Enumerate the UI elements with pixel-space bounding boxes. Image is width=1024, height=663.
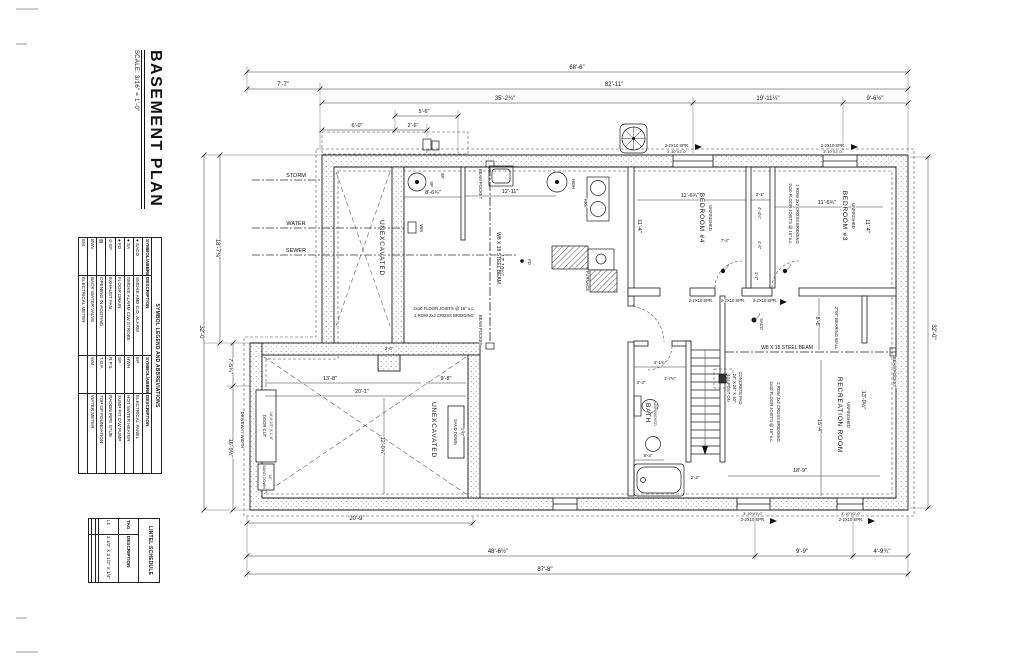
room-sublabel: UNFINISHED [708, 205, 713, 231]
dim-label: 4'-4" [757, 241, 762, 250]
lintel-note: 2-2X10 SPR. [665, 143, 689, 148]
sheet-corner-marks [16, 9, 38, 652]
dim-label: 68'-6" [569, 65, 584, 71]
furnace [552, 246, 588, 269]
dim-label: 12'-11" [502, 189, 519, 195]
furnace-plenum [590, 270, 617, 292]
dim-label: 6'-0" [352, 123, 363, 129]
lintel-note: 2-2X10 SPR. [839, 517, 863, 522]
dim-label: 19'-11½" [756, 95, 779, 102]
floor-drain [520, 259, 524, 263]
dim-label: 18'-7¾" [214, 239, 220, 259]
legend-symbol: ● SACO [133, 238, 142, 276]
symbol-legend: SYMBOL LEGEND AND ABBREVIATIONS SYMBOL/A… [78, 237, 162, 473]
legend-symbol: T.O.F. [97, 356, 106, 394]
sand-down-depth: 16" [268, 474, 272, 480]
legend-desc: ELECTRICAL PANEL [133, 394, 142, 474]
room-label-recreation: RECREATION ROOM [836, 377, 843, 453]
legend-symbol: ▨ [97, 238, 106, 276]
exhaust-fan-label: EF [440, 173, 445, 179]
legend-desc: OPENING IN FOOTING [97, 276, 106, 356]
sand-down-note: SAND DOWN [453, 419, 458, 445]
steel-beam-note: W8 X 18 STEEL BEAM [761, 345, 813, 351]
beam-pocket-note: BEAM POCKET [892, 357, 897, 388]
post-note: 24" X 24" X 10" [732, 374, 737, 403]
walls [250, 155, 908, 510]
joist-note: 2x10 FLOOR JOISTS @ 16" o.c. [788, 183, 793, 244]
page-title: BASEMENT PLAN [141, 50, 164, 209]
dim-label: 32'-0" [930, 324, 936, 339]
dim-label: 13'-0½" [860, 391, 867, 410]
dim-label: 82'-11" [605, 82, 623, 88]
windows [553, 155, 863, 510]
lintel-table: LINTEL SCHEDULE TAG DESCRIPTION L13 1/2"… [88, 518, 160, 583]
storm-label: STORM [286, 173, 306, 179]
joist-note: 2x10 FLOOR JOISTS @ 16" o.c. [413, 306, 474, 311]
legend-symbol: R.P.S. [106, 356, 115, 394]
post-note: CONCRETE PAD [738, 372, 743, 405]
legend-symbol: ● FD [115, 238, 124, 276]
window-size-note: 3'-10"X2'-0" [667, 150, 687, 154]
lintel-desc [95, 535, 98, 583]
dim-label: 3'-3" [637, 380, 646, 385]
dim-label: 16'-9½" [227, 439, 234, 458]
dim-label: 1'-2" [754, 272, 759, 281]
dim-label: 9'-9" [796, 549, 808, 555]
dim-label: 18'-9" [793, 468, 807, 474]
window-well-fan [620, 124, 647, 153]
steel-beam-note: W8 X 18 STEEL BEAM [495, 232, 501, 284]
dim-label: 12'-0¾" [379, 437, 385, 456]
legend-symbol: EP [133, 356, 142, 394]
lintel-desc [89, 535, 92, 583]
window-size-note: 3'-10"X2'-0" [743, 512, 763, 516]
lintel-header: TAG [118, 519, 138, 535]
room-label-bath: BATH [644, 403, 651, 423]
dim-label: 9'-6½" [867, 95, 884, 102]
legend-desc: TOP OF FOUNDATION [97, 394, 106, 474]
wm-label: WM [419, 224, 424, 232]
legend-header: SYMBOL/ABBREV. [143, 356, 152, 394]
sump-pit-label: SP [429, 181, 434, 187]
legend-title: SYMBOL LEGEND AND ABBREVIATIONS [152, 238, 162, 474]
dim-label: 8'-6¾" [425, 190, 441, 196]
room-sublabel: UNFINISHED [846, 402, 851, 428]
construction-notes: W8 X 18 STEEL BEAM W8 X 18 STEEL BEAM BE… [262, 143, 897, 522]
beam-pocket-note: BEAM POCKET [478, 169, 483, 200]
legend-symbol: SP [115, 356, 124, 394]
hwh-label: HWH [571, 179, 576, 189]
legend-symbol: ● SA [124, 238, 133, 276]
dim-label: 2'-6" [408, 123, 419, 129]
stud-walls [461, 167, 896, 496]
legend-desc: SMOKE ALARM C/W STROBE [124, 276, 133, 356]
legend-desc: SUMP PIT C/W PUMP [115, 394, 124, 474]
lintel-note: 2-2X10 SPR. [753, 298, 777, 303]
dim-label: 9'-8" [441, 376, 452, 382]
meter [423, 139, 431, 150]
water-meter [408, 222, 416, 233]
dim-label: 7'-4" [721, 238, 730, 243]
legend-header: SYMBOL/ABBREV. [143, 238, 152, 276]
dim-label: 4'-1¾" [654, 360, 667, 365]
lintel-desc: 3 1/2" X 3 1/2" X 1/4" [98, 535, 118, 583]
bath-fixtures [634, 396, 684, 496]
utility-labels: STORM WATER SEWER [286, 173, 306, 254]
dim-label: 11'-6¾" [681, 193, 699, 199]
title-block: BASEMENT PLAN SCALE: 3/16" = 1'-0" [130, 50, 164, 232]
post-note: 4X4 POST ON [726, 374, 731, 401]
dim-label: 20'-1" [355, 389, 369, 395]
legend-desc: RADON PIPE STUB [106, 394, 115, 474]
window-size-note: 3'-10"X2'-0" [823, 150, 843, 154]
lintel-tag [89, 519, 92, 535]
legend-symbol: EM [79, 238, 88, 276]
meter [432, 141, 439, 150]
dim-label: 32'-0" [198, 325, 204, 340]
dim-label: 11'-6¾" [818, 200, 836, 206]
lintel-note: 2-2X10 SPR. [689, 298, 713, 303]
lintel-title: LINTEL SCHEDULE [138, 519, 159, 583]
dim-label: 15'-4" [816, 419, 822, 433]
lintel-note: 2-2X10 SPR. [821, 143, 845, 148]
lintel-tag: L1 [98, 519, 118, 535]
dim-label: 2'-6" [385, 346, 394, 351]
window-size-note: 3'-10"X2'-0" [841, 512, 861, 516]
sand-down-note: SAND DOWN [262, 465, 266, 489]
dim-label: 1'-7¾" [664, 376, 676, 381]
legend-desc: HOT WATER HEATER [124, 394, 133, 474]
legend-symbol: HWH [124, 356, 133, 394]
water-label: WATER [286, 221, 305, 227]
legend-table: SYMBOL LEGEND AND ABBREVIATIONS SYMBOL/A… [78, 237, 162, 474]
dim-label: 5'-6" [419, 109, 430, 115]
toilet [634, 396, 641, 416]
sink [646, 437, 661, 452]
drawing-sheet: BASEMENT PLAN SCALE: 3/16" = 1'-0" SYMBO… [0, 0, 1024, 663]
lintel-desc [92, 535, 95, 583]
dim-label: 4'-9¾" [874, 549, 891, 555]
sewer-label: SEWER [286, 248, 306, 254]
dim-label: 20'-9" [349, 516, 364, 522]
staircase [691, 350, 733, 455]
joist-note: 2x10 FLOOR JOISTS @ 16" o.c. [769, 381, 774, 442]
bridging-note: 2 ROW 2x2 CROSS BRIDGING [776, 382, 781, 442]
lintel-note: 2-2X10 SPR. [741, 517, 765, 522]
legend-desc: EXHAUST FAN [106, 276, 115, 356]
dim-label: 2'-1" [756, 192, 765, 197]
legend-symbol: WM [88, 356, 97, 394]
legend-desc: FLOOR DRAIN [115, 276, 124, 356]
legend-desc: WATER METER [88, 394, 97, 474]
footing-lines [244, 132, 914, 516]
legend-desc [79, 394, 88, 474]
dim-label: 4'-4½" [757, 207, 762, 219]
room-label-bedroom4: BEDROOM #4 [698, 193, 705, 244]
legend-symbol: BWV [88, 238, 97, 276]
fd-label: FD [527, 259, 532, 265]
door-cut-size-note: 16'-6 1/2" X 1'-6" [269, 412, 273, 441]
legend-header: DESCRIPTION [143, 394, 152, 474]
dim-label: 87'-8" [537, 567, 552, 573]
dim-label: 13'-8" [323, 376, 337, 382]
sand-down-depth: 1'-0" [460, 428, 465, 437]
furnace-label: FURNACE [585, 271, 590, 291]
lintel-tag [92, 519, 95, 535]
lintel-note: 2-2X10 SPR. [721, 298, 745, 303]
bearing-wall-note: 2"X6" BEARING WALL [834, 307, 839, 351]
dimension-labels: 68'-6" 7'-7" 82'-11" 35'-2¾" 19'-11½" 9'… [198, 65, 936, 573]
legend-desc: BACK WATER VALVE [88, 276, 97, 356]
dim-label: 7'-7" [277, 82, 289, 88]
driveway-width-label: DRIVEWAY WIDTH [240, 412, 245, 449]
room-sublabel: UNFINISHED [851, 203, 856, 229]
dim-label: 48'-6½" [488, 548, 508, 555]
legend-desc: ELECTRICAL METER [79, 276, 88, 356]
legend-symbol [79, 356, 88, 394]
lintel-tag [95, 519, 98, 535]
bridging-note: 1 ROW 2x2 CROSS BRIDGING [414, 313, 474, 318]
room-label-bedroom3: BEDROOM #3 [841, 191, 848, 242]
room-label-unexcavated: UNEXCAVATED [430, 402, 437, 458]
legend-desc: SMOKE AND C.O. ALARM [133, 276, 142, 356]
lintel-schedule: LINTEL SCHEDULE TAG DESCRIPTION L13 1/2"… [88, 518, 160, 582]
hrv-label: HRV [583, 199, 588, 208]
bridging-note: 1 ROW 2x2 CROSS BRIDGING [795, 184, 800, 244]
drawing-scale: SCALE: 3/16" = 1'-0" [133, 50, 139, 232]
beam-pocket [486, 343, 494, 349]
room-sublabel: UNFINISHED [653, 402, 657, 425]
saco-label: SACO [759, 318, 764, 331]
dim-label: 11'-4" [864, 219, 870, 233]
lintel-header: DESCRIPTION [118, 535, 138, 583]
beam-pocket-note: BEAM POCKET [478, 315, 483, 346]
legend-symbol: ⊘ EF [106, 238, 115, 276]
room-label-unexcavated: UNEXCAVATED [378, 220, 385, 276]
legend-header: DESCRIPTION [143, 276, 152, 356]
hrv-unit [587, 177, 609, 221]
dim-label: 8'-6" [814, 317, 820, 328]
dim-label: 35'-2¾" [495, 96, 515, 102]
dim-label: 11'-4" [636, 219, 642, 233]
dim-label: 2'-2" [691, 475, 700, 480]
dim-label: 7'-5¾" [227, 358, 233, 374]
dim-label: 5'-2" [644, 453, 653, 458]
door-cut-note: DOOR CUT [262, 415, 267, 438]
bathtub [634, 464, 684, 496]
